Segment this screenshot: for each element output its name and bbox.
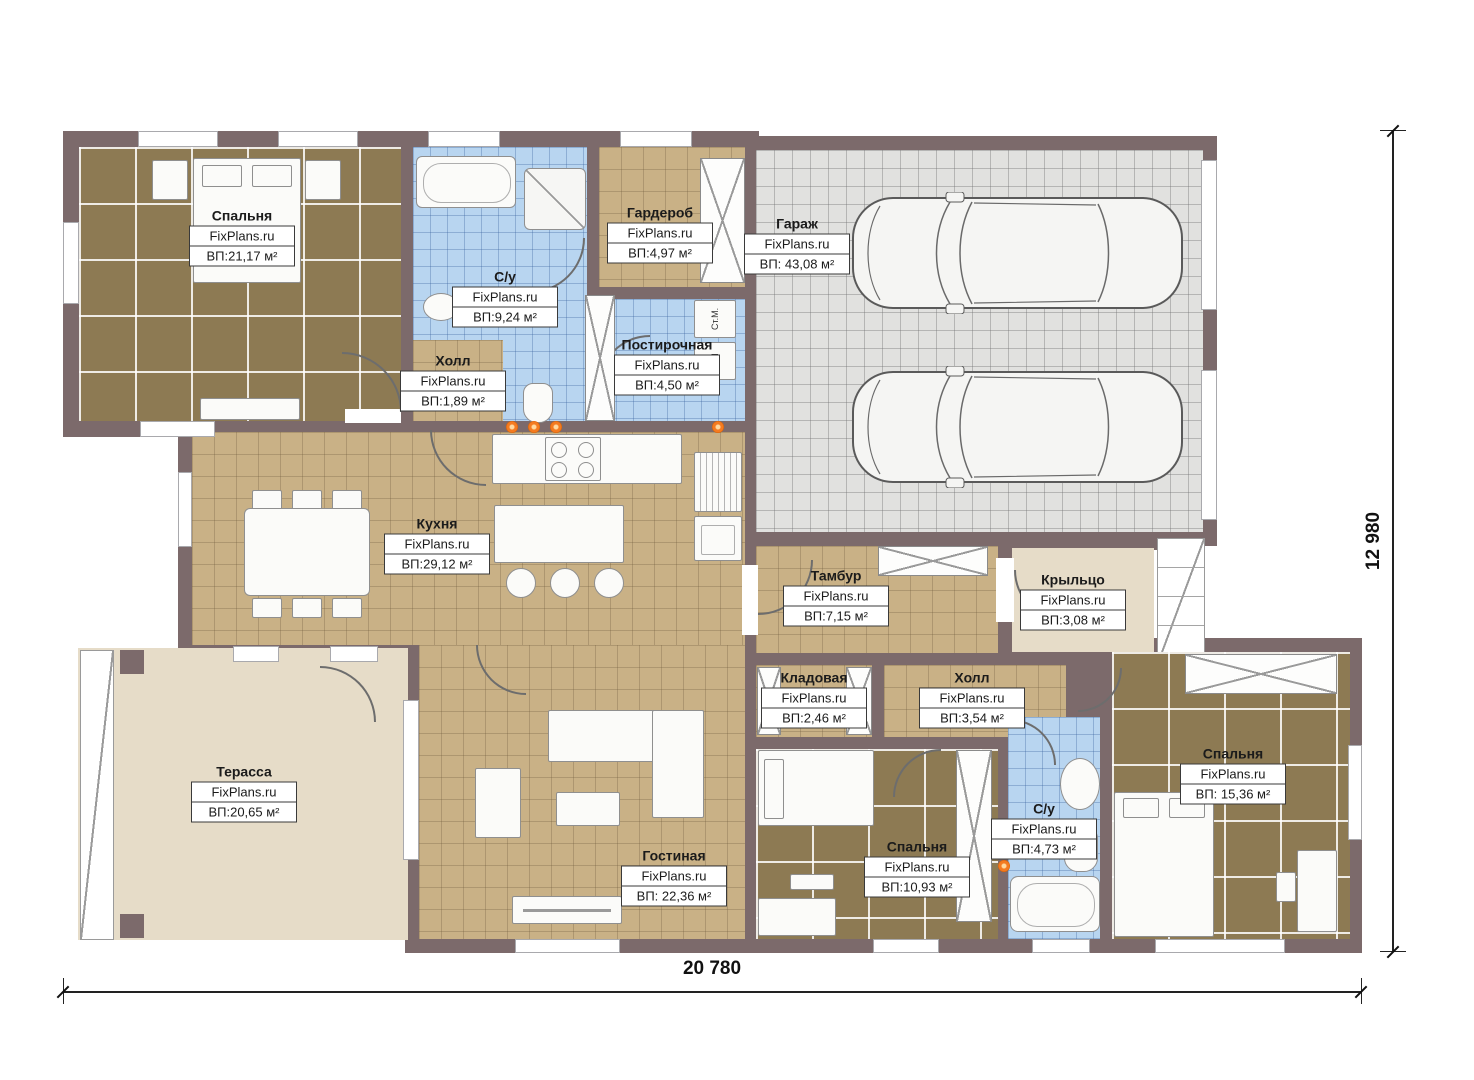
chair [1276,872,1296,902]
watermark: FixPlans.ru [762,689,866,708]
car-icon [850,192,1185,314]
window [278,131,358,147]
room-name: Кухня [384,516,490,532]
watermark: FixPlans.ru [608,224,712,243]
room-label-tambour: Тамбур FixPlans.ru ВП:7,15 м² [783,568,889,627]
bed [1114,792,1214,937]
room-label-porch: Крыльцо FixPlans.ru ВП:3,08 м² [1020,572,1126,631]
kitchen-island [494,505,624,563]
chair [252,490,282,510]
room-area: ВП: 22,36 м² [622,886,726,906]
dimension-line-vertical [1392,130,1394,952]
window [63,222,79,304]
room-area: ВП:1,89 м² [401,391,505,411]
watermark: FixPlans.ru [1021,591,1125,610]
room-name: Тамбур [783,568,889,584]
window [138,131,218,147]
wardrobe-cabinet [758,898,836,936]
closet [878,546,988,576]
light-dot [528,421,540,433]
tv-stand [512,896,622,924]
window [233,646,279,662]
dining-table [244,508,370,596]
desk [1297,850,1337,932]
door-opening [996,558,1014,622]
stove [545,437,601,481]
garage-door-opening [1201,160,1217,310]
room-label-kitchen: Кухня FixPlans.ru ВП:29,12 м² [384,516,490,575]
watermark: FixPlans.ru [615,356,719,375]
terrace-post [120,650,144,674]
room-label-bedroom1: Спальня FixPlans.ru ВП:21,17 м² [189,208,295,267]
stool [506,568,536,598]
room-area: ВП:20,65 м² [192,802,296,822]
room-area: ВП:10,93 м² [865,877,969,897]
dresser [790,874,834,890]
watermark: FixPlans.ru [622,867,726,886]
window [873,939,939,953]
room-name: Холл [400,353,506,369]
window [1032,939,1090,953]
stool [594,568,624,598]
room-name: Холл [919,670,1025,686]
chair [292,490,322,510]
room-name: Кладовая [761,670,867,686]
room-label-bedroom3: Спальня FixPlans.ru ВП: 15,36 м² [1180,746,1286,805]
room-area: ВП:4,73 м² [992,839,1096,859]
room-name: Спальня [189,208,295,224]
chair [332,598,362,618]
shower [524,168,586,230]
terrace-railing [80,650,114,940]
room-area: ВП:29,12 м² [385,554,489,574]
toilet [523,383,553,423]
chair [252,598,282,618]
room-label-bedroom2: Спальня FixPlans.ru ВП:10,93 м² [864,839,970,898]
fridge [694,452,742,512]
watermark: FixPlans.ru [1181,765,1285,784]
porch-steps [1157,538,1205,664]
closet [1185,654,1337,694]
window [1155,939,1285,953]
pillow [1123,798,1159,818]
room-area: ВП:3,54 м² [920,708,1024,728]
watermark: FixPlans.ru [745,235,849,254]
room-name: Гараж [744,216,850,232]
room-area: ВП: 43,08 м² [745,254,849,274]
room-area: ВП:21,17 м² [190,246,294,266]
dimension-line-horizontal [63,991,1362,993]
watermark: FixPlans.ru [784,587,888,606]
room-name: С/у [452,269,558,285]
room-area: ВП:2,46 м² [762,708,866,728]
watermark: FixPlans.ru [992,820,1096,839]
chair [332,490,362,510]
light-dot [506,421,518,433]
room-label-living: Гостиная FixPlans.ru ВП: 22,36 м² [621,848,727,907]
chair [292,598,322,618]
car-icon [850,366,1185,488]
watermark: FixPlans.ru [385,535,489,554]
nightstand [152,160,188,200]
room-area: ВП:3,08 м² [1021,610,1125,630]
window [140,421,215,437]
window [515,939,620,953]
room-name: С/у [991,801,1097,817]
room-area: ВП:4,97 м² [608,243,712,263]
pillow [252,165,292,187]
room-label-bathroom1: С/у FixPlans.ru ВП:9,24 м² [452,269,558,328]
pillow [202,165,242,187]
watermark: FixPlans.ru [920,689,1024,708]
room-area: ВП:4,50 м² [615,375,719,395]
dresser [200,398,300,420]
room-label-wardrobe: Гардероб FixPlans.ru ВП:4,97 м² [607,205,713,264]
window [428,131,500,147]
room-label-hall2: Холл FixPlans.ru ВП:3,54 м² [919,670,1025,729]
room-label-hall1: Холл FixPlans.ru ВП:1,89 м² [400,353,506,412]
room-name: Постирочная [614,337,720,353]
bathtub [416,156,516,208]
bed [758,750,874,826]
watermark: FixPlans.ru [865,858,969,877]
floor-plan: Ст.М. СШ [0,0,1474,1080]
sofa-chaise [652,710,704,818]
pillow [764,759,784,819]
dimension-height-label: 12 980 [1363,512,1385,570]
room-name: Спальня [1180,746,1286,762]
room-label-pantry: Кладовая FixPlans.ru ВП:2,46 м² [761,670,867,729]
window [178,472,192,547]
room-name: Крыльцо [1020,572,1126,588]
bathtub [1010,876,1100,932]
light-dot [550,421,562,433]
dimension-width-label: 20 780 [683,958,741,980]
room-name: Терасса [191,764,297,780]
coffee-table [556,792,620,826]
room-name: Спальня [864,839,970,855]
watermark: FixPlans.ru [192,783,296,802]
kitchen-sink [694,516,742,561]
watermark: FixPlans.ru [401,372,505,391]
terrace-post [120,914,144,938]
room-label-terrace: Терасса FixPlans.ru ВП:20,65 м² [191,764,297,823]
window [330,646,378,662]
watermark: FixPlans.ru [453,288,557,307]
light-dot [998,860,1010,872]
window [1348,745,1362,840]
garage-door-opening [1201,370,1217,520]
closet [585,295,615,421]
watermark: FixPlans.ru [190,227,294,246]
window [403,700,419,860]
window [620,131,692,147]
room-area: ВП:9,24 м² [453,307,557,327]
room-label-bathroom2: С/у FixPlans.ru ВП:4,73 м² [991,801,1097,860]
room-area: ВП: 15,36 м² [1181,784,1285,804]
room-label-garage: Гараж FixPlans.ru ВП: 43,08 м² [744,216,850,275]
armchair [475,768,521,838]
door-opening [742,565,758,635]
stool [550,568,580,598]
nightstand [305,160,341,200]
light-dot [712,421,724,433]
room-name: Гардероб [607,205,713,221]
room-label-laundry: Постирочная FixPlans.ru ВП:4,50 м² [614,337,720,396]
room-area: ВП:7,15 м² [784,606,888,626]
room-name: Гостиная [621,848,727,864]
washing-machine-label: Ст.М. [694,300,736,338]
